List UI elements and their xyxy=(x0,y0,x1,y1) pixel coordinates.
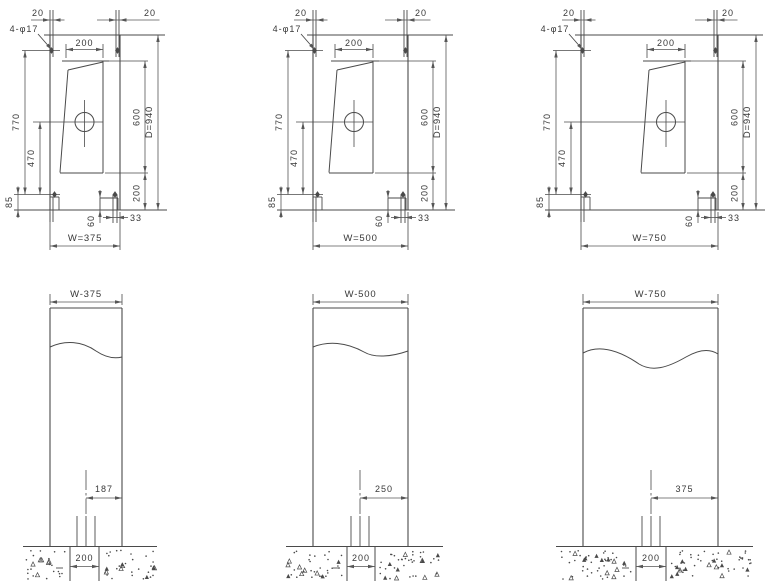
dim-label-bolt-edge: 85 xyxy=(4,196,14,208)
dim-label-bolt-edge: 85 xyxy=(535,196,545,208)
break-wave-line xyxy=(583,349,718,368)
dim-label-door-width: 200 xyxy=(345,38,363,48)
elevation-view-w750: 375W-750200 xyxy=(556,289,753,581)
dim-label-center-to-bolt: 470 xyxy=(289,149,299,167)
mounting-feet xyxy=(313,197,406,210)
lock-circle xyxy=(345,100,364,147)
dim-label-center-to-edge: 375 xyxy=(675,484,693,494)
dim-label-width: W-500 xyxy=(345,289,377,300)
plan-view-w750: 77047085600200D=940200W=750202060334-φ17 xyxy=(535,8,765,250)
mounting-feet xyxy=(50,197,118,210)
dim-label-top-offset-right: 20 xyxy=(415,8,427,18)
dimensions: 375W-750200 xyxy=(583,289,718,568)
dim-label-door-height: 600 xyxy=(420,108,430,126)
dim-label-door-width: 200 xyxy=(75,38,93,48)
dim-label-door-bottom-gap: 200 xyxy=(420,184,430,202)
cabinet-front-outline xyxy=(583,308,718,546)
dim-label-door-width: 200 xyxy=(657,38,675,48)
technical-drawing-svg: 77047085600200D=940200W=375202060334-φ17… xyxy=(0,0,772,586)
dim-label-width: W-750 xyxy=(635,289,667,300)
conduit-pipes xyxy=(642,516,660,546)
dimensions: 77047085600200D=940200W=37520206033 xyxy=(4,8,160,250)
mounting-feet xyxy=(581,197,716,210)
dim-label-door-height: 600 xyxy=(730,108,740,126)
dim-label-foot-width: 60 xyxy=(684,215,694,227)
dim-label-door-bottom-gap: 200 xyxy=(730,184,740,202)
dim-label-conduit-width: 200 xyxy=(75,553,93,563)
lock-circle xyxy=(657,100,676,147)
anchor-spec-callout: 4-φ17 xyxy=(10,24,52,50)
dim-label-top-offset-right: 20 xyxy=(722,8,734,18)
dimensions: 250W-500200 xyxy=(313,289,408,568)
dim-label-depth: D=940 xyxy=(432,106,443,138)
dim-label-conduit-width: 200 xyxy=(642,553,660,563)
elevation-view-w375: 187W-375200 xyxy=(23,289,157,581)
dim-label-top-offset-left: 20 xyxy=(32,8,44,18)
buried-base xyxy=(622,547,666,582)
conduit-pipes xyxy=(77,516,95,546)
dim-label-top-offset-left: 20 xyxy=(295,8,307,18)
dim-label-foot-width: 60 xyxy=(374,215,384,227)
anchor-spec-label: 4-φ17 xyxy=(273,24,302,34)
dim-label-width: W=375 xyxy=(68,233,102,244)
dim-label-top-offset-left: 20 xyxy=(563,8,575,18)
dim-label-width: W-375 xyxy=(70,289,102,300)
anchor-bolts xyxy=(14,10,120,223)
dim-label-door-height: 600 xyxy=(132,108,142,126)
dim-label-foot-offset: 33 xyxy=(728,213,740,223)
dim-label-foot-width: 60 xyxy=(86,215,96,227)
dim-label-depth: D=940 xyxy=(742,106,753,138)
dim-label-center-to-edge: 187 xyxy=(95,484,113,494)
conduit-pipes xyxy=(351,516,369,546)
dim-label-center-to-bolt: 470 xyxy=(557,149,567,167)
dimensions: 77047085600200D=940200W=75020206033 xyxy=(535,8,758,250)
dim-label-top-offset-right: 20 xyxy=(144,8,156,18)
anchor-spec-callout: 4-φ17 xyxy=(273,24,315,50)
dim-label-conduit-width: 200 xyxy=(352,553,370,563)
anchor-spec-label: 4-φ17 xyxy=(541,24,570,34)
anchor-spec-callout: 4-φ17 xyxy=(541,24,583,50)
dim-label-bolt-span: 770 xyxy=(274,113,284,131)
break-wave-line xyxy=(50,342,122,357)
dimensions: 77047085600200D=940200W=50020206033 xyxy=(267,8,448,250)
dim-label-center-to-bolt: 470 xyxy=(26,149,36,167)
dim-label-bolt-edge: 85 xyxy=(267,196,277,208)
dim-label-foot-offset: 33 xyxy=(130,213,142,223)
dim-label-foot-offset: 33 xyxy=(418,213,430,223)
buried-base xyxy=(56,547,99,582)
dim-label-width: W=500 xyxy=(343,233,377,244)
dim-label-center-to-edge: 250 xyxy=(375,484,393,494)
plan-view-w375: 77047085600200D=940200W=375202060334-φ17 xyxy=(4,8,167,250)
anchor-spec-label: 4-φ17 xyxy=(10,24,39,34)
plan-view-w500: 77047085600200D=940200W=500202060334-φ17 xyxy=(267,8,455,250)
drawing-canvas: 77047085600200D=940200W=375202060334-φ17… xyxy=(0,0,772,586)
lock-circle xyxy=(75,100,94,147)
dim-label-bolt-span: 770 xyxy=(542,113,552,131)
dim-label-bolt-span: 770 xyxy=(11,113,21,131)
dim-label-depth: D=940 xyxy=(144,106,155,138)
elevation-view-w500: 250W-500200 xyxy=(286,289,443,581)
dim-label-door-bottom-gap: 200 xyxy=(132,184,142,202)
dim-label-width: W=750 xyxy=(632,233,666,244)
break-wave-line xyxy=(313,343,408,356)
